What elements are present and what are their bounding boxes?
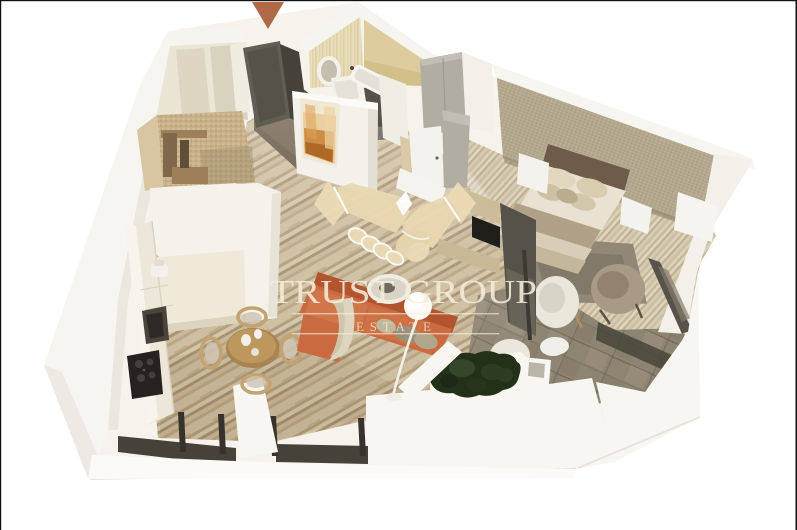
svg-text:ESTATE: ESTATE — [356, 319, 437, 334]
svg-text:TRUST GROUP: TRUST GROUP — [270, 274, 537, 311]
